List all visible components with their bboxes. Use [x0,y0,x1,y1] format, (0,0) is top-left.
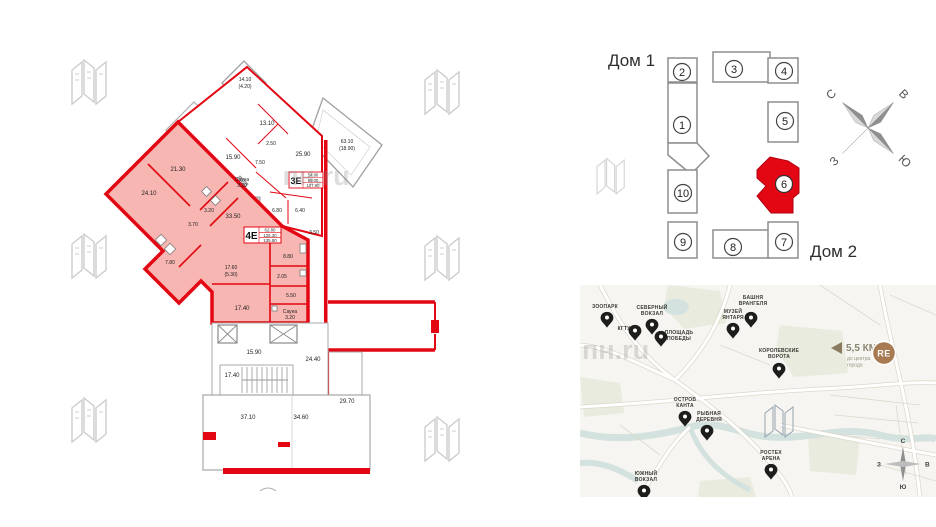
room-area-label: 3.70 [188,222,198,228]
building-blocks [668,52,798,258]
unit-circle-2: 2 [674,64,691,81]
unit-area-summer: 135.80 [263,238,277,243]
break-mark [260,488,276,491]
svg-text:8: 8 [730,242,736,254]
room-area-label: 3.20 [204,208,214,214]
unit-area-living: 62.80 [265,228,277,233]
map-label: АРЕНА [762,456,781,462]
building-sketch-icon [425,236,459,280]
room-area-label: 2.50 [266,141,276,147]
unit-circle-5: 5 [777,113,794,130]
svg-text:2: 2 [679,67,685,79]
compass-north-label: С [901,438,906,445]
room-area-label: 13.10 [259,121,275,127]
unit-circle-10: 10 [675,185,692,202]
listing-graphic: 4Е 62.80 126.30 135.80 3Е 54.90 89.00 10… [0,0,936,527]
map-label: КГТУ [618,326,632,332]
map-label: МУЗЕЙ [724,307,743,315]
map-pin-yuzhny-vokzal [638,485,651,497]
map-label: ВРАНГЕЛЯ [739,301,768,307]
svg-text:10: 10 [677,188,689,200]
location-map: пн.ru 5,5 КМ до центра города RE ЗООПАРК… [580,285,936,497]
unit-circle-6: 6 [776,176,793,193]
watermark: пн.ru [282,161,349,191]
svg-text:1: 1 [679,120,685,132]
unit-code: 4Е [245,231,258,242]
room-area-label: 7.80 [165,260,175,266]
re-logo: RE [873,342,896,365]
distance-sub-1: до центра [847,356,871,362]
room-area-label: 25.90 [295,152,311,158]
building-sketch-icon [597,159,624,194]
room-area-label: 3.20 [285,315,295,321]
house-1-label: Дом 1 [608,51,655,70]
floor-plan: 4Е 62.80 126.30 135.80 3Е 54.90 89.00 10… [60,40,480,510]
building-sketch-icon [425,417,459,461]
unit-circle-8: 8 [725,239,742,256]
room-area-label: (5.30) [224,272,237,278]
room-area-label: 2.05 [277,274,287,280]
map-label: ЗООПАРК [592,304,619,310]
room-area-label: 21.30 [170,167,186,173]
svg-text:3: 3 [731,64,737,76]
building-sketch-icon [72,398,106,442]
unit-circle-1: 1 [674,117,691,134]
room-area-label: 17.40 [234,306,250,312]
svg-text:9: 9 [680,237,686,249]
building-scheme: Дом 1 Дом 2 1 2 3 4 5 6 7 8 9 10 [595,45,936,270]
unit-circle-9: 9 [675,234,692,251]
map-label: ПОБЕДЫ [667,336,691,342]
unit-info-box-4e: 4Е 62.80 126.30 135.80 [244,227,281,243]
building-sketch-icon [72,234,106,278]
map-label: ВОКЗАЛ [641,311,663,317]
unit-circle-7: 7 [776,234,793,251]
svg-text:4: 4 [781,66,787,78]
room-area-label: 24.40 [305,357,321,363]
room-area-label: 17.40 [224,373,240,379]
compass-south-label: Ю [900,484,907,491]
map-label: КАНТА [676,403,694,409]
svg-text:RE: RE [877,349,891,359]
compass-west-label: З [877,462,881,469]
right-corridor [328,302,439,350]
room-area-label: 29.70 [339,399,355,405]
distance-sub-2: города [847,363,863,369]
svg-text:7: 7 [781,237,787,249]
room-area-label: 3.20 [237,183,247,189]
room-area-label: 37.10 [240,415,256,421]
commercial-space [203,395,370,474]
room-area-label: 8.80 [283,254,293,260]
compass-south-label: Ю [896,152,914,170]
room-area-label: 15.90 [225,155,241,161]
unit-circle-3: 3 [726,61,743,78]
watermark: пн.ru [582,335,649,365]
room-area-label: 3.50 [309,230,319,236]
room-area-label: 63.10 [341,139,354,145]
room-area-label: 33.50 [225,214,241,220]
room-area-label: 34.60 [293,415,309,421]
room-area-label: (18.90) [339,146,355,152]
room-area-label: 14.10 [239,77,252,83]
svg-text:5: 5 [782,116,788,128]
compass-north-label: С [823,86,839,102]
building-sketch-icon [72,60,106,104]
room-area-label: 24.10 [141,191,157,197]
room-area-label: 7.50 [255,160,265,166]
compass-rose [843,103,894,154]
unit-circle-4: 4 [776,63,793,80]
map-label: ЯНТАРЯ [722,315,744,321]
room-area-label: (4.20) [238,84,251,90]
compass-east-label: В [896,86,912,102]
svg-text:6: 6 [781,179,787,191]
room-area-label: 17.60 [225,265,238,271]
house-2-label: Дом 2 [810,242,857,261]
map-label: ВОКЗАЛ [635,477,657,483]
room-area-label: 5.50 [286,293,296,299]
compass-west-label: З [827,154,842,169]
map-label: ДЕРЕВНЯ [696,417,722,423]
room-area-label: 6.40 [295,208,305,214]
map-label: ВОРОТА [768,354,790,360]
compass-east-label: В [925,462,930,469]
map-label: ЮЖНЫЙ [635,469,658,477]
room-area-label: 15.90 [246,350,262,356]
map-label: СЕВЕРНЫЙ [637,303,668,311]
building-sketch-icon [425,70,459,114]
room-area-label: 6.80 [272,208,282,214]
